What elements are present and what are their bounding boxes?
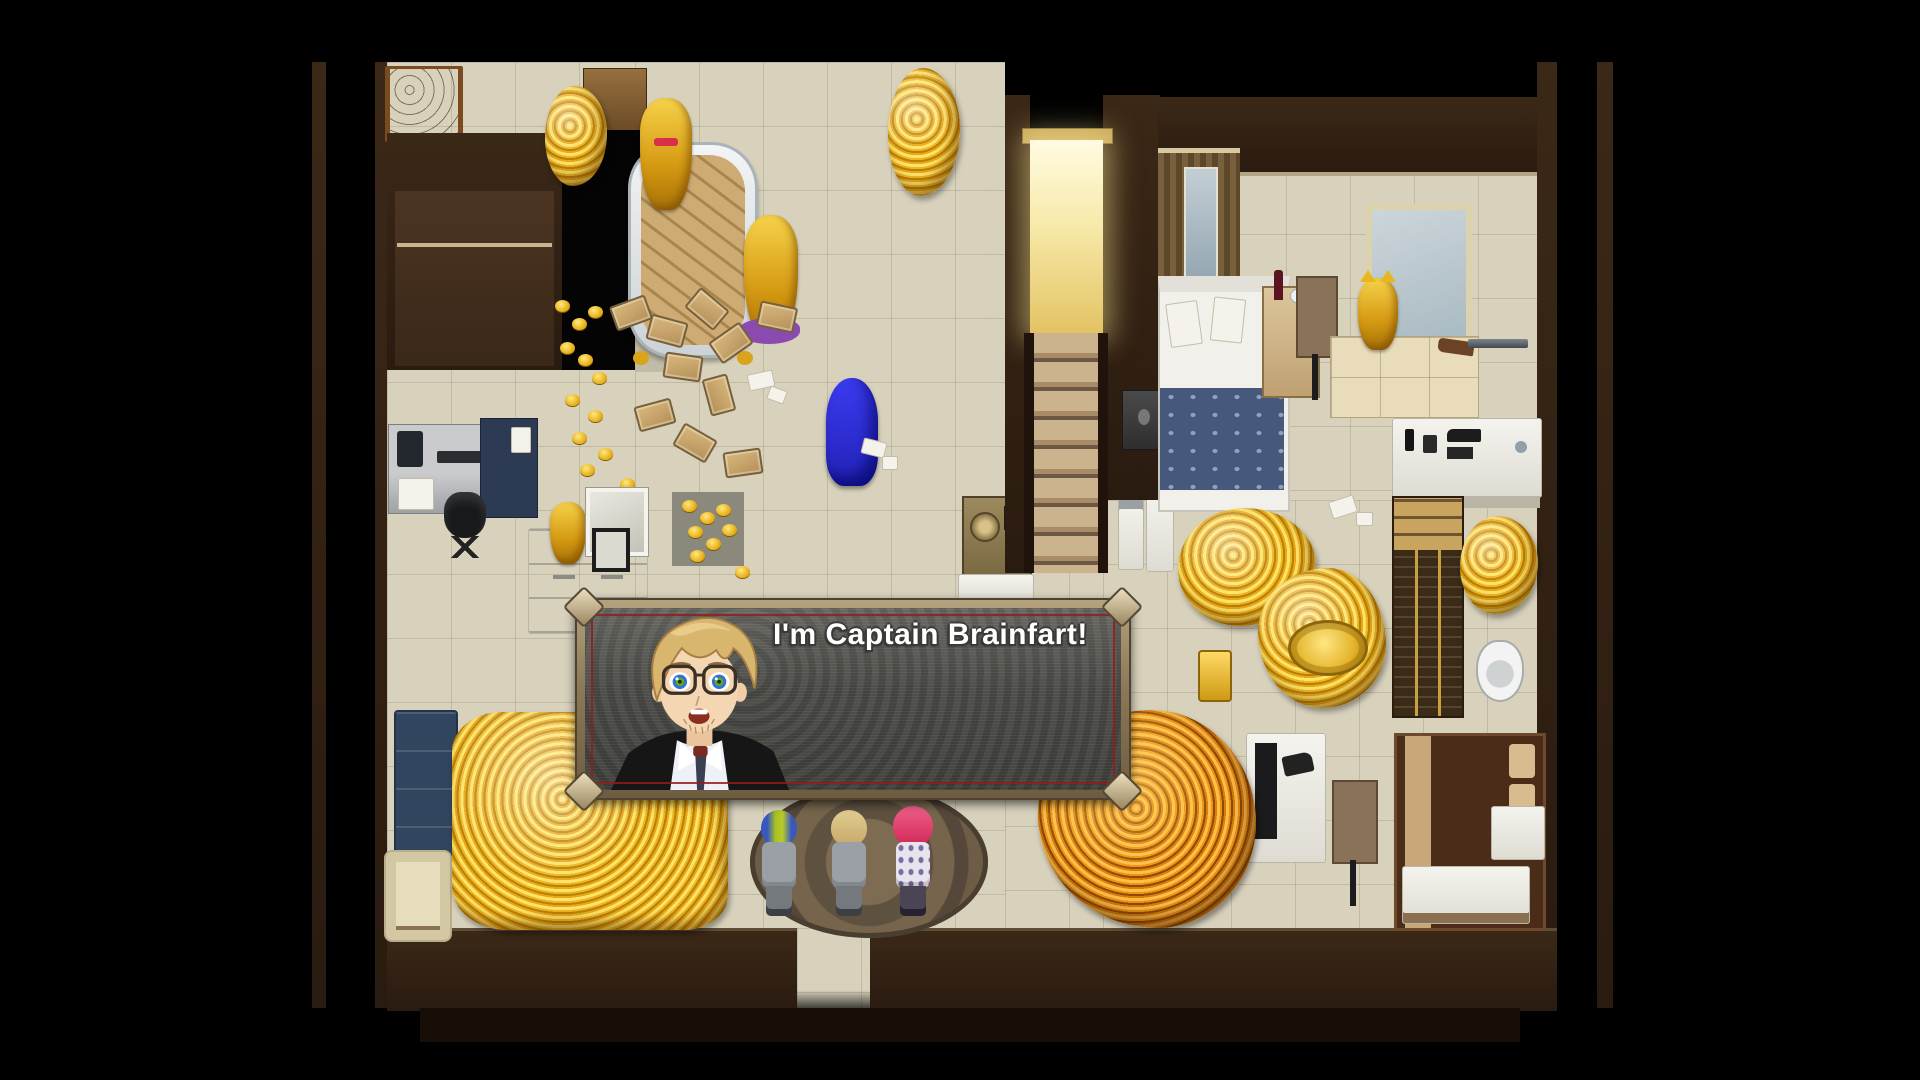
monitor	[397, 431, 423, 467]
gold-coin	[735, 566, 750, 578]
cream-armchair	[384, 850, 452, 942]
npc-blond[interactable]	[828, 810, 870, 924]
bedside-table	[1491, 806, 1545, 860]
gun-barrel	[1468, 339, 1528, 348]
npc-legs	[900, 886, 926, 916]
npc-hair	[831, 810, 867, 846]
sign-pole	[1312, 354, 1318, 400]
handgun-icon	[1281, 751, 1315, 777]
framed-picture-small	[592, 528, 630, 572]
golden-cat-statue	[1358, 278, 1398, 350]
folding-screen	[385, 66, 463, 142]
chair-seat	[444, 492, 486, 538]
drawer-handle	[553, 575, 575, 579]
dialog-background: I'm Captain Brainfart!	[585, 608, 1121, 790]
gold-coin	[598, 448, 613, 460]
blue-hooded-statue[interactable]	[826, 378, 878, 486]
hammer-icon	[1423, 435, 1437, 453]
paper-scrap	[882, 456, 898, 470]
npc-green-hair[interactable]	[758, 810, 800, 924]
switch-knob	[1138, 409, 1150, 425]
gold-coin	[588, 410, 603, 422]
gold-coin	[572, 318, 587, 330]
outer-wall-left	[312, 62, 326, 1008]
tool-icon	[1405, 429, 1414, 451]
faucet-icon	[1515, 441, 1527, 453]
gold-coin	[716, 504, 731, 516]
wine-bottle	[1274, 270, 1283, 300]
gold-bar-ends	[1394, 498, 1462, 550]
rack-rail	[1415, 550, 1418, 716]
rack-rail	[1438, 550, 1441, 716]
curtains	[1158, 148, 1240, 288]
npc-hair	[761, 810, 797, 846]
wardrobe-trim	[397, 243, 552, 247]
npc-body	[832, 842, 866, 888]
wardrobe-doors	[395, 191, 554, 366]
giant-gold-plate	[1288, 620, 1368, 676]
pillow	[1210, 296, 1246, 343]
outer-wall-right	[1597, 62, 1613, 1008]
wardrobe	[387, 133, 562, 370]
pillow	[1165, 300, 1203, 348]
tub-foot-right	[737, 351, 753, 365]
gold-coin	[572, 432, 587, 444]
gold-coin	[690, 550, 705, 562]
tool-counter	[1392, 418, 1542, 498]
gold-bar	[722, 447, 763, 478]
npc-hair	[893, 806, 933, 846]
navy-couch	[394, 710, 458, 864]
dialog-box[interactable]: I'm Captain Brainfart!	[575, 598, 1131, 800]
gold-coin	[580, 464, 595, 476]
blue-blanket	[1160, 388, 1284, 490]
gold-coin	[588, 306, 603, 318]
npc-legs	[836, 886, 862, 916]
bottom-wall-right	[870, 928, 1557, 1011]
pillow	[1509, 744, 1535, 778]
toilet	[1476, 640, 1524, 702]
gold-bar	[662, 351, 703, 382]
gold-coin	[682, 500, 697, 512]
npc-body	[896, 842, 930, 888]
cat-ear-icon	[1380, 270, 1396, 282]
sign-pole-2	[1350, 860, 1356, 906]
gold-coin	[700, 512, 715, 524]
gold-coin	[555, 300, 570, 312]
drawer-handle	[601, 575, 623, 579]
gold-coin	[722, 524, 737, 536]
gold-coin	[592, 372, 607, 384]
white-bench	[1402, 866, 1530, 924]
npc-body	[762, 842, 796, 888]
office-chair[interactable]	[436, 492, 494, 566]
keyboard	[437, 451, 483, 463]
pinned-paper	[511, 427, 531, 453]
record-disc	[970, 512, 1000, 542]
stairs-up[interactable]	[1032, 333, 1100, 573]
gold-bar-upright	[1198, 650, 1232, 702]
sign-board-2	[1332, 780, 1378, 864]
gold-coin	[706, 538, 721, 550]
cat-ear-icon	[1360, 270, 1376, 282]
shotgun	[1438, 334, 1530, 358]
paper-stack	[398, 478, 434, 510]
npc-pink-hair[interactable]	[892, 806, 934, 920]
gold-coin	[560, 342, 575, 354]
brush-icon	[1447, 447, 1473, 459]
dialog-text: I'm Captain Brainfart!	[773, 618, 1121, 652]
window	[1184, 167, 1218, 283]
glowing-doorway[interactable]	[1030, 140, 1103, 333]
game-viewport[interactable]: I'm Captain Brainfart!	[0, 0, 1920, 1080]
statue-bikini	[654, 138, 678, 146]
tub-foot-left	[633, 351, 649, 365]
npc-legs	[766, 886, 792, 916]
monitor	[1255, 743, 1277, 839]
chair-legs	[438, 536, 492, 558]
computer-desk	[1246, 733, 1326, 863]
gold-coin	[578, 354, 593, 366]
gold-coin	[565, 394, 580, 406]
speaker-portrait	[599, 608, 799, 790]
appliance-small	[1118, 498, 1144, 570]
brush-icon	[1447, 429, 1481, 442]
stair-rail-right	[1098, 333, 1108, 573]
golden-statue-kneeling	[640, 98, 692, 210]
bottom-outer-wall	[420, 1008, 1520, 1042]
gold-coin	[688, 526, 703, 538]
paper-scrap	[1356, 512, 1373, 526]
gold-bar-rack	[1392, 496, 1464, 718]
golden-praying-statue	[550, 502, 586, 564]
stair-rail-left	[1024, 333, 1034, 573]
